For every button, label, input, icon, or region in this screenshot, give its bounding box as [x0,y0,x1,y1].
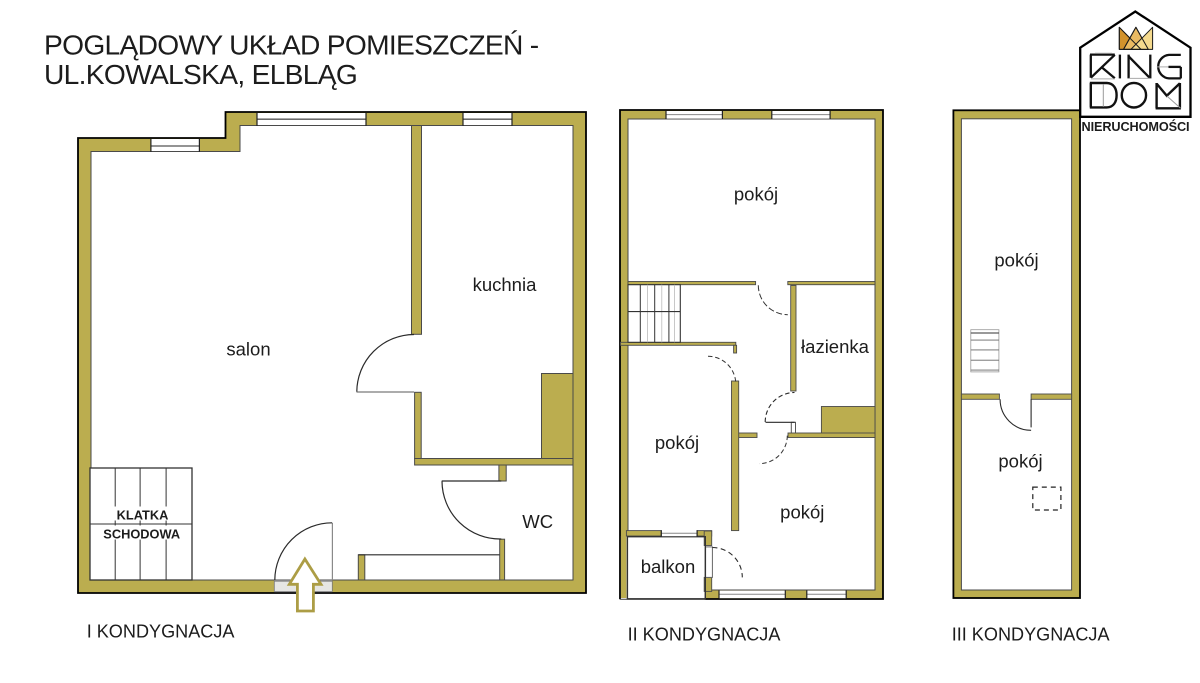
svg-text:pokój: pokój [994,250,1038,271]
svg-text:III KONDYGNACJA: III KONDYGNACJA [952,624,1111,644]
svg-text:POGLĄDOWY UKŁAD POMIESZCZEŃ -: POGLĄDOWY UKŁAD POMIESZCZEŃ - [44,28,539,60]
svg-text:pokój: pokój [998,451,1042,472]
svg-text:I KONDYGNACJA: I KONDYGNACJA [87,621,236,641]
svg-text:KLATKA: KLATKA [117,508,169,523]
svg-text:UL.KOWALSKA, ELBLĄG: UL.KOWALSKA, ELBLĄG [44,58,357,90]
svg-text:salon: salon [226,339,270,360]
svg-text:II KONDYGNACJA: II KONDYGNACJA [628,624,782,644]
svg-text:pokój: pokój [655,432,699,453]
svg-text:kuchnia: kuchnia [473,274,537,295]
svg-text:balkon: balkon [641,556,696,577]
svg-text:pokój: pokój [780,502,824,523]
svg-text:łazienka: łazienka [801,336,870,357]
svg-text:pokój: pokój [734,184,778,205]
svg-text:WC: WC [522,511,553,532]
svg-text:NIERUCHOMOŚCI: NIERUCHOMOŚCI [1082,119,1190,134]
svg-text:SCHODOWA: SCHODOWA [103,527,180,542]
